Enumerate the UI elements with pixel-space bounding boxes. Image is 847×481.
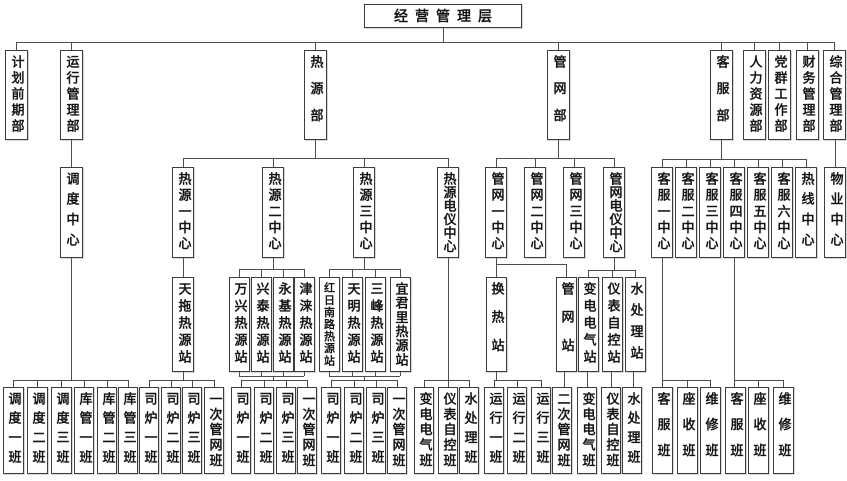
connector-line (424, 380, 425, 387)
connector-line (612, 270, 613, 277)
connector-line (758, 380, 759, 387)
connector-line (13, 380, 128, 381)
connector-line (496, 372, 497, 380)
org-node-ry1: 热源一中心 (172, 167, 194, 258)
connector-line (241, 380, 242, 387)
connector-line (424, 380, 469, 381)
connector-line (734, 380, 735, 387)
org-node-diaodu: 调度中心 (60, 167, 83, 258)
org-node-sl2b: 司炉二班 (254, 387, 274, 474)
connector-line (304, 269, 305, 277)
connector-line (662, 380, 663, 387)
connector-line (754, 42, 755, 50)
connector-line (315, 140, 316, 158)
org-node-bdb1: 变电电气班 (414, 387, 434, 474)
connector-line (273, 158, 274, 167)
org-node-sl3a: 司炉三班 (182, 387, 202, 474)
connector-line (611, 372, 612, 387)
org-node-kefu: 客服部 (710, 50, 733, 140)
connector-line (329, 269, 400, 270)
org-node-kg2: 库管二班 (97, 387, 117, 474)
org-node-dd1: 调度一班 (3, 387, 24, 474)
org-node-renli: 人力资源部 (743, 50, 766, 140)
connector-line (37, 380, 38, 387)
org-node-yongji: 永基热源站 (273, 277, 294, 372)
org-node-ecgw: 二次管网班 (552, 387, 572, 474)
connector-line (783, 380, 784, 387)
org-node-ybst: 仪表自控站 (602, 277, 623, 372)
connector-line (307, 380, 308, 387)
org-node-gw1: 管网一中心 (485, 167, 507, 258)
connector-line (807, 42, 808, 50)
connector-line (662, 159, 663, 167)
org-node-reyuan: 热源部 (304, 50, 327, 140)
org-node-caiwu: 财务管理部 (796, 50, 819, 140)
connector-line (469, 380, 470, 387)
connector-line (635, 270, 636, 277)
org-node-kf1: 客服一中心 (651, 167, 673, 258)
connector-line (286, 380, 287, 387)
connector-line (541, 380, 542, 387)
connector-line (587, 372, 588, 387)
org-node-rexian: 热线中心 (795, 167, 817, 258)
connector-line (364, 158, 365, 167)
org-node-yx2: 运行二班 (507, 387, 527, 474)
org-node-sl1a: 司炉一班 (139, 387, 159, 474)
org-node-rydy: 热源电仪中心 (437, 167, 459, 258)
connector-line (183, 158, 448, 159)
connector-line (128, 380, 129, 387)
connector-line (400, 269, 401, 277)
org-node-wxb1: 维修班 (700, 387, 721, 474)
connector-line (304, 372, 305, 376)
connector-line (376, 380, 377, 387)
org-node-yx3: 运行三班 (531, 387, 551, 474)
org-node-gwz: 管网站 (556, 277, 577, 372)
connector-line (710, 159, 711, 167)
org-node-kg3: 库管三班 (118, 387, 138, 474)
org-node-dd2: 调度二班 (27, 387, 48, 474)
org-node-tiantuo: 天拖热源站 (172, 277, 194, 372)
connector-line (734, 159, 735, 167)
org-node-kf5: 客服五中心 (747, 167, 769, 258)
connector-line (566, 264, 567, 277)
org-node-ycgwc: 一次管网班 (387, 387, 407, 474)
org-node-bdst: 变电电气站 (578, 277, 599, 372)
org-node-hongri: 红日南路热源站 (319, 277, 340, 372)
connector-line (517, 380, 518, 387)
connector-line (241, 380, 307, 381)
org-node-wanxing: 万兴热源站 (229, 277, 250, 372)
org-node-wuye: 物业中心 (824, 167, 846, 258)
connector-line (535, 158, 536, 167)
org-node-kf6: 客服六中心 (771, 167, 793, 258)
org-node-bdb2: 变电电气班 (577, 387, 597, 474)
connector-line (558, 42, 559, 50)
connector-line (834, 42, 835, 50)
connector-line (171, 380, 172, 387)
connector-line (564, 372, 565, 387)
org-node-yijunli: 宜君里热源站 (390, 277, 411, 372)
org-node-tianming: 天明热源站 (342, 277, 363, 372)
org-node-sl2c: 司炉二班 (344, 387, 364, 474)
org-node-kg1: 库管一班 (74, 387, 94, 474)
connector-line (687, 380, 688, 387)
org-node-yunxing: 运行管理部 (60, 50, 83, 140)
org-node-jihua: 计划前期部 (5, 50, 28, 140)
connector-line (558, 140, 559, 158)
connector-line (16, 42, 834, 43)
org-node-xingtai: 兴泰热源站 (251, 277, 272, 372)
org-node-kf4: 客服四中心 (723, 167, 745, 258)
org-node-wxb2: 维修班 (773, 387, 794, 474)
org-node-gw3: 管网三中心 (563, 167, 585, 258)
connector-line (214, 380, 215, 387)
connector-line (496, 258, 497, 277)
connector-line (331, 380, 332, 387)
connector-line (61, 380, 62, 387)
connector-line (758, 159, 759, 167)
connector-line (239, 269, 240, 277)
connector-line (273, 258, 274, 269)
connector-line (633, 372, 634, 387)
org-node-kfb2: 客服班 (725, 387, 746, 474)
org-node-kf2: 客服二中心 (675, 167, 697, 258)
connector-line (448, 380, 449, 387)
org-node-guanwang: 管网部 (547, 50, 570, 140)
connector-line (496, 158, 497, 167)
org-node-scb1: 水处理班 (459, 387, 479, 474)
org-node-sl3b: 司炉三班 (276, 387, 296, 474)
org-node-kf3: 客服三中心 (699, 167, 721, 258)
connector-line (496, 158, 614, 159)
connector-line (779, 42, 780, 50)
connector-line (364, 258, 365, 269)
connector-line (721, 42, 722, 50)
connector-line (614, 258, 615, 270)
connector-line (782, 159, 783, 167)
connector-line (352, 269, 353, 277)
org-node-ybb1: 仪表自控班 (438, 387, 458, 474)
org-chart: 经营管理层计划前期部运行管理部热源部管网部客服部人力资源部党群工作部财务管理部综… (0, 0, 847, 481)
connector-line (283, 269, 284, 277)
org-node-ry2: 热源二中心 (262, 167, 284, 258)
connector-line (315, 42, 316, 50)
connector-line (375, 269, 376, 277)
connector-line (149, 380, 150, 387)
org-node-dd3: 调度三班 (51, 387, 72, 474)
connector-line (107, 380, 108, 387)
org-node-sanfeng: 三峰热源站 (365, 277, 386, 372)
connector-line (331, 380, 397, 381)
connector-line (354, 380, 355, 387)
org-node-zsb2: 座收班 (748, 387, 769, 474)
connector-line (686, 159, 687, 167)
org-node-sl1c: 司炉一班 (321, 387, 341, 474)
org-node-ry3: 热源三中心 (353, 167, 375, 258)
org-node-zonghe: 综合管理部 (823, 50, 846, 140)
connector-line (443, 28, 444, 42)
connector-line (806, 159, 807, 167)
connector-line (734, 258, 735, 380)
connector-line (183, 372, 184, 380)
connector-line (835, 140, 836, 167)
connector-line (13, 380, 14, 387)
org-node-huanre: 换热站 (486, 277, 507, 372)
connector-line (183, 158, 184, 167)
org-node-zsb1: 座收班 (677, 387, 698, 474)
connector-line (397, 380, 398, 387)
connector-line (329, 269, 330, 277)
org-node-root: 经营管理层 (364, 4, 522, 28)
org-node-ycgwa: 一次管网班 (204, 387, 224, 474)
connector-line (448, 158, 449, 167)
connector-line (710, 380, 711, 387)
connector-line (183, 258, 184, 277)
org-node-jinlai: 津涞热源站 (294, 277, 315, 372)
connector-line (192, 380, 193, 387)
connector-line (264, 380, 265, 387)
org-node-dangqun: 党群工作部 (768, 50, 791, 140)
org-node-gw2: 管网二中心 (524, 167, 546, 258)
connector-line (496, 264, 566, 265)
connector-line (721, 140, 722, 159)
connector-line (261, 269, 262, 277)
connector-line (614, 158, 615, 167)
org-node-scst: 水处理站 (625, 277, 646, 372)
org-node-sl2a: 司炉二班 (161, 387, 181, 474)
connector-line (494, 380, 495, 387)
org-node-kfb1: 客服班 (652, 387, 673, 474)
connector-line (71, 258, 72, 380)
connector-line (149, 380, 214, 381)
org-node-ybb2: 仪表自控班 (601, 387, 621, 474)
connector-line (84, 380, 85, 387)
connector-line (574, 158, 575, 167)
connector-line (239, 269, 304, 270)
connector-line (448, 258, 449, 380)
connector-line (239, 376, 304, 377)
connector-line (71, 140, 72, 167)
org-node-sl3c: 司炉三班 (366, 387, 386, 474)
org-node-gwdy: 管网电仪中心 (603, 167, 625, 258)
org-node-scb2: 水处理班 (622, 387, 642, 474)
org-node-yx1: 运行一班 (484, 387, 504, 474)
connector-line (71, 42, 72, 50)
org-node-ycgwb: 一次管网班 (297, 387, 317, 474)
connector-line (662, 380, 710, 381)
connector-line (400, 372, 401, 376)
connector-line (16, 42, 17, 50)
connector-line (588, 270, 589, 277)
org-node-sl1b: 司炉一班 (231, 387, 251, 474)
connector-line (662, 258, 663, 380)
